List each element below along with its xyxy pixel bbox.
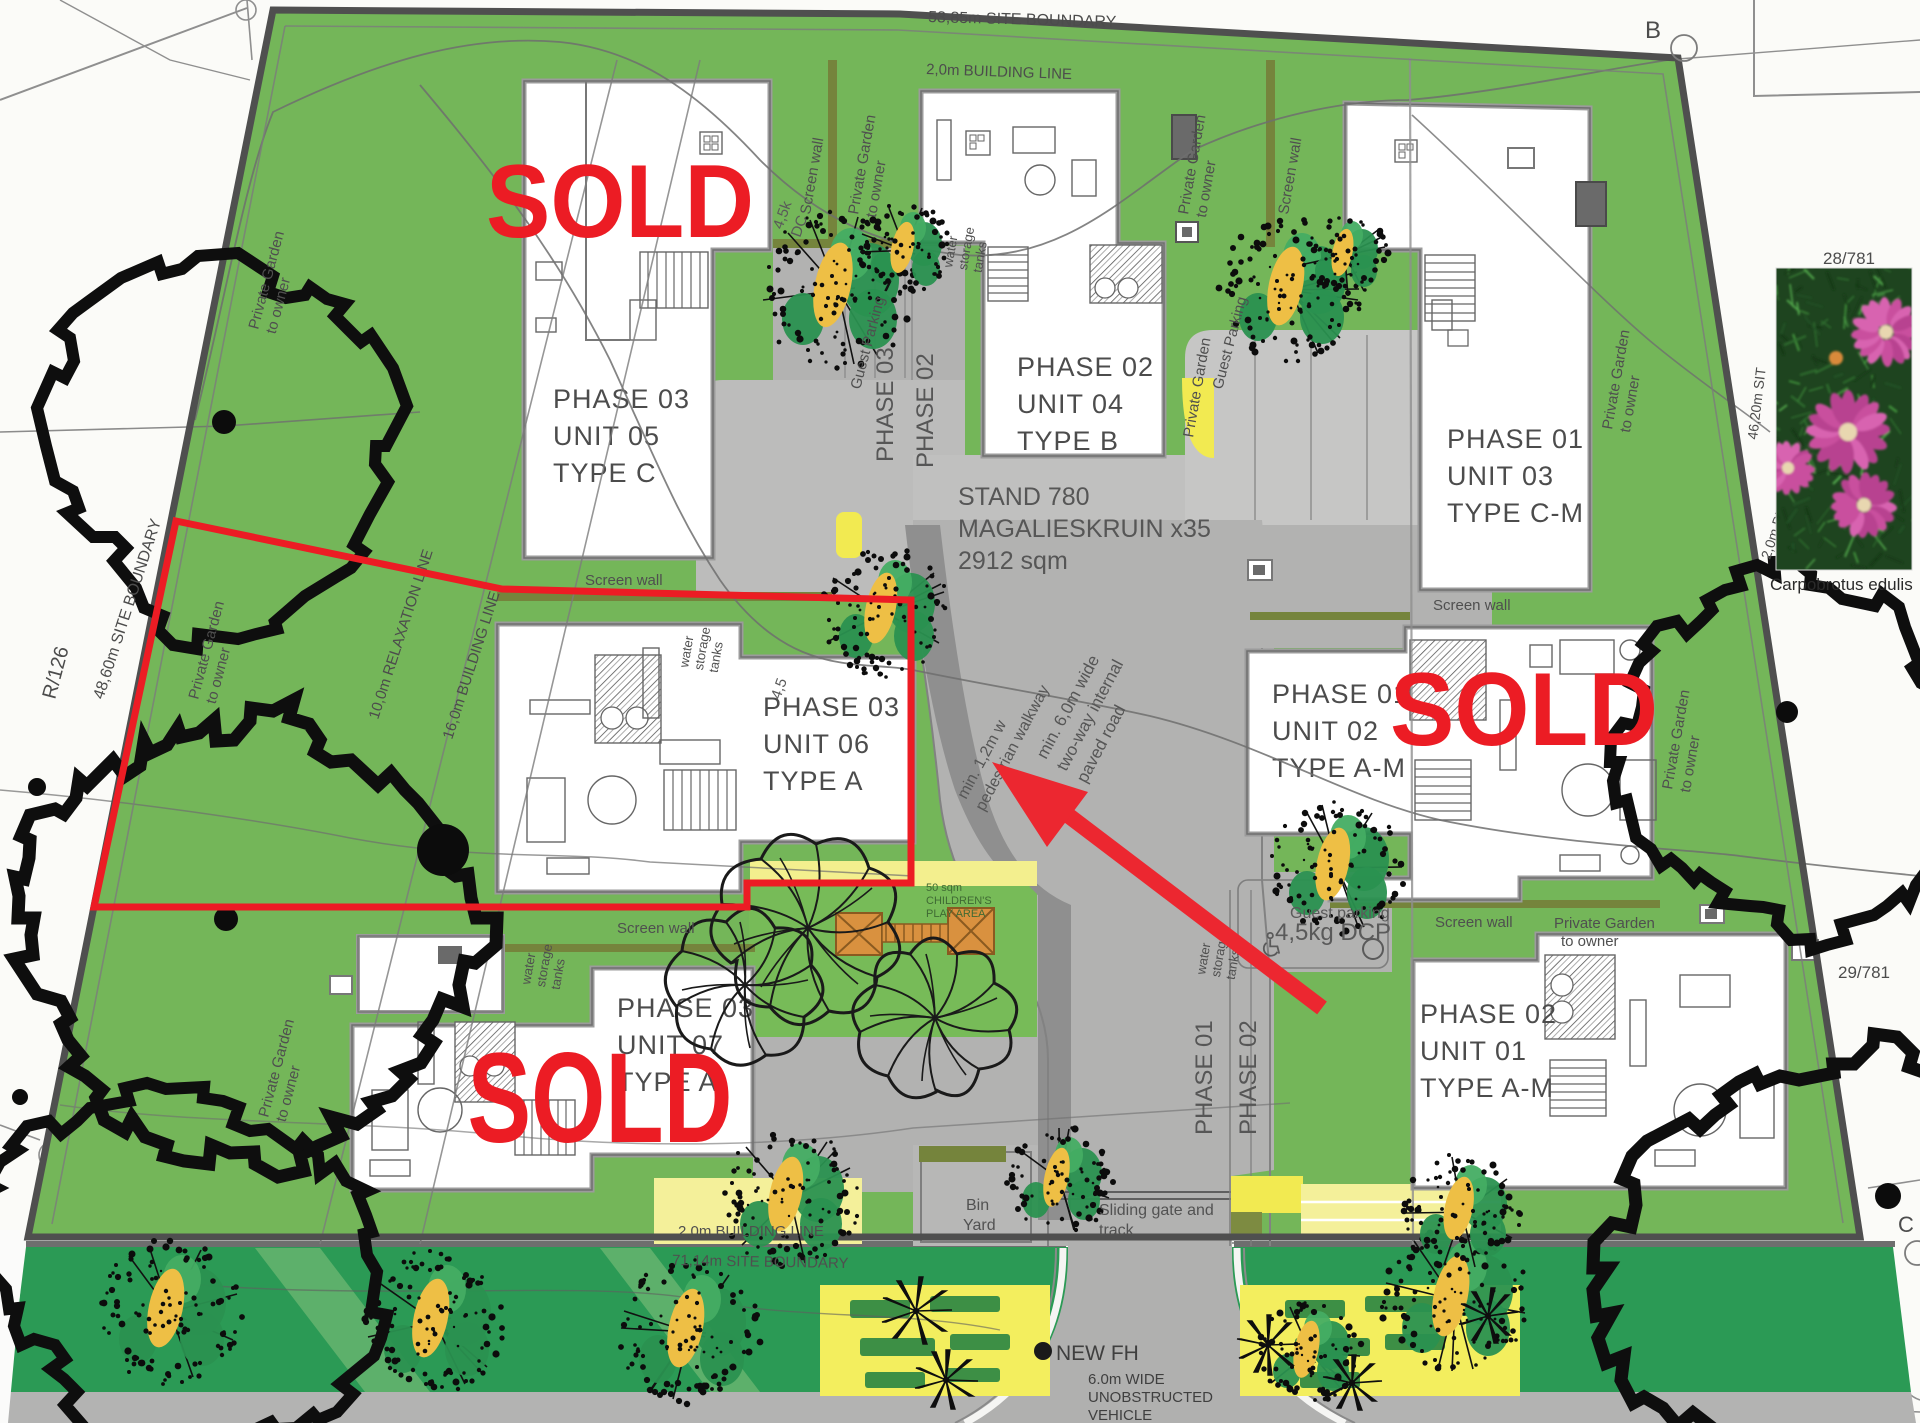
svg-text:TYPE A-M: TYPE A-M (1272, 753, 1406, 783)
svg-text:UNIT 03: UNIT 03 (1447, 461, 1554, 491)
svg-text:PHASE 01: PHASE 01 (1272, 679, 1409, 709)
svg-text:Screen wall: Screen wall (1433, 597, 1511, 614)
svg-text:TYPE C-M: TYPE C-M (1447, 498, 1584, 528)
svg-text:MAGALIESKRUIN x35: MAGALIESKRUIN x35 (958, 515, 1211, 543)
svg-text:PHASE 02: PHASE 02 (912, 353, 939, 468)
svg-text:VEHICLE: VEHICLE (1088, 1407, 1152, 1423)
svg-text:PHASE 03: PHASE 03 (872, 347, 899, 462)
svg-text:Private Garden: Private Garden (1554, 915, 1655, 932)
svg-text:STAND 780: STAND 780 (958, 483, 1090, 511)
svg-text:71,14m SITE BOUNDARY: 71,14m SITE BOUNDARY (672, 1252, 849, 1272)
svg-text:PHASE 02: PHASE 02 (1420, 999, 1557, 1029)
svg-text:PLAY AREA: PLAY AREA (926, 908, 986, 920)
svg-text:PHASE 02: PHASE 02 (1017, 352, 1154, 382)
svg-text:Guest parking: Guest parking (1290, 905, 1390, 922)
svg-text:Yard: Yard (963, 1217, 996, 1234)
svg-text:2,0m BUILDING LINE: 2,0m BUILDING LINE (678, 1223, 824, 1240)
svg-text:B: B (1645, 17, 1661, 44)
svg-text:PHASE 01: PHASE 01 (1191, 1020, 1218, 1135)
svg-text:C: C (1898, 1212, 1914, 1237)
svg-text:SOLD: SOLD (486, 144, 754, 260)
svg-text:29/781: 29/781 (1838, 963, 1890, 982)
svg-text:PHASE 02: PHASE 02 (1235, 1020, 1262, 1135)
svg-text:PHASE 01: PHASE 01 (1447, 424, 1584, 454)
svg-text:UNIT 02: UNIT 02 (1272, 716, 1379, 746)
svg-text:TYPE A: TYPE A (763, 766, 864, 796)
svg-text:6.0m WIDE: 6.0m WIDE (1088, 1371, 1165, 1388)
svg-text:UNIT 06: UNIT 06 (763, 729, 870, 759)
svg-text:2912 sqm: 2912 sqm (958, 547, 1068, 575)
svg-text:TYPE B: TYPE B (1017, 426, 1119, 456)
svg-text:SOLD: SOLD (468, 1027, 733, 1170)
svg-text:50 sqm: 50 sqm (926, 882, 962, 894)
svg-text:28/781: 28/781 (1823, 249, 1875, 268)
svg-text:Screen wall: Screen wall (1435, 914, 1513, 931)
svg-text:to owner: to owner (1561, 933, 1619, 950)
svg-text:track: track (1099, 1222, 1135, 1239)
svg-text:UNIT 01: UNIT 01 (1420, 1036, 1527, 1066)
svg-text:TYPE A-M: TYPE A-M (1420, 1073, 1554, 1103)
svg-text:Bin: Bin (966, 1197, 989, 1214)
svg-text:NEW FH: NEW FH (1056, 1342, 1139, 1365)
svg-text:UNOBSTRUCTED: UNOBSTRUCTED (1088, 1389, 1213, 1406)
svg-text:SOLD: SOLD (1390, 652, 1658, 768)
svg-text:Screen wall: Screen wall (585, 572, 663, 589)
svg-text:Carpobrotus edulis: Carpobrotus edulis (1770, 575, 1913, 594)
svg-text:CHILDREN'S: CHILDREN'S (926, 895, 992, 907)
svg-text:Sliding gate and: Sliding gate and (1099, 1202, 1214, 1219)
svg-text:Screen wall: Screen wall (617, 920, 695, 937)
svg-text:4,5kg DCP: 4,5kg DCP (1275, 919, 1391, 946)
svg-text:UNIT 04: UNIT 04 (1017, 389, 1124, 419)
